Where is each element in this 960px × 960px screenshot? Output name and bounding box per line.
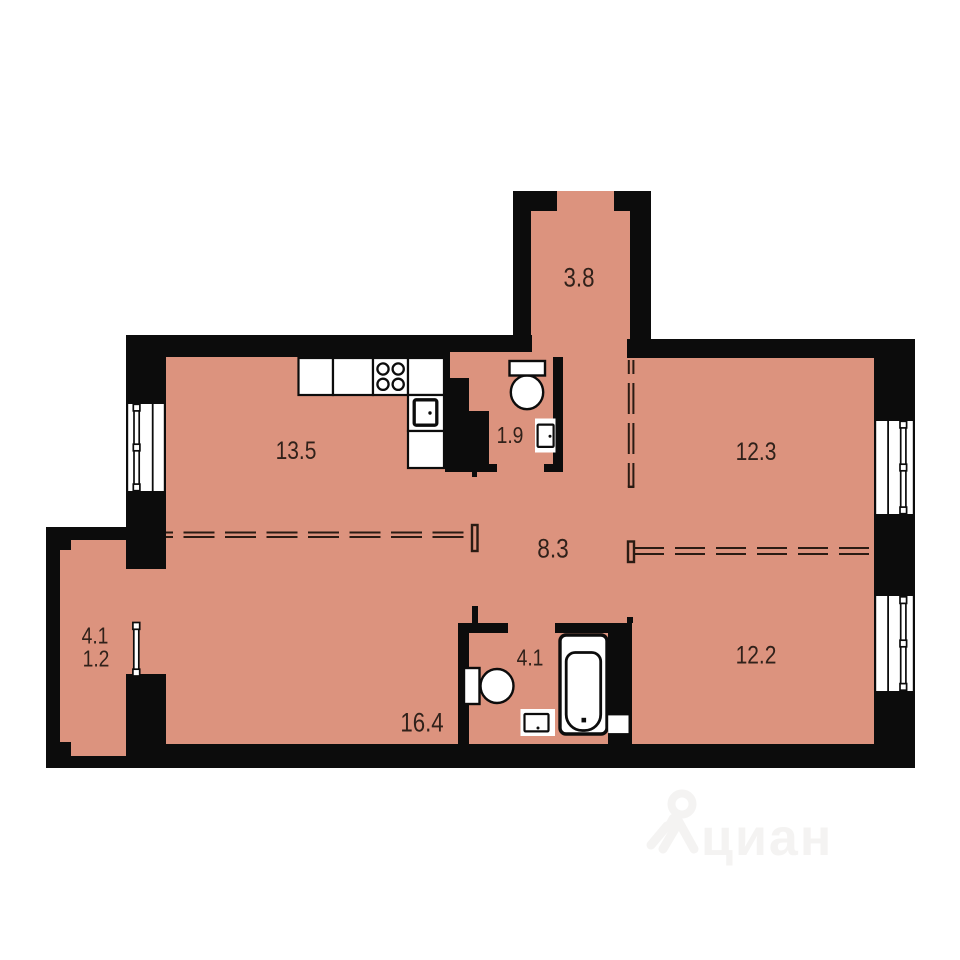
svg-text:3.8: 3.8 — [564, 264, 595, 293]
svg-text:циан: циан — [701, 809, 833, 867]
svg-text:12.2: 12.2 — [736, 641, 777, 669]
svg-text:12.3: 12.3 — [736, 437, 777, 465]
svg-text:1.9: 1.9 — [497, 424, 524, 449]
svg-text:13.5: 13.5 — [276, 436, 317, 464]
svg-text:4.1: 4.1 — [82, 624, 109, 649]
svg-text:1.2: 1.2 — [83, 647, 110, 672]
svg-text:16.4: 16.4 — [400, 709, 443, 738]
svg-text:8.3: 8.3 — [537, 534, 569, 564]
svg-text:4.1: 4.1 — [517, 646, 544, 671]
